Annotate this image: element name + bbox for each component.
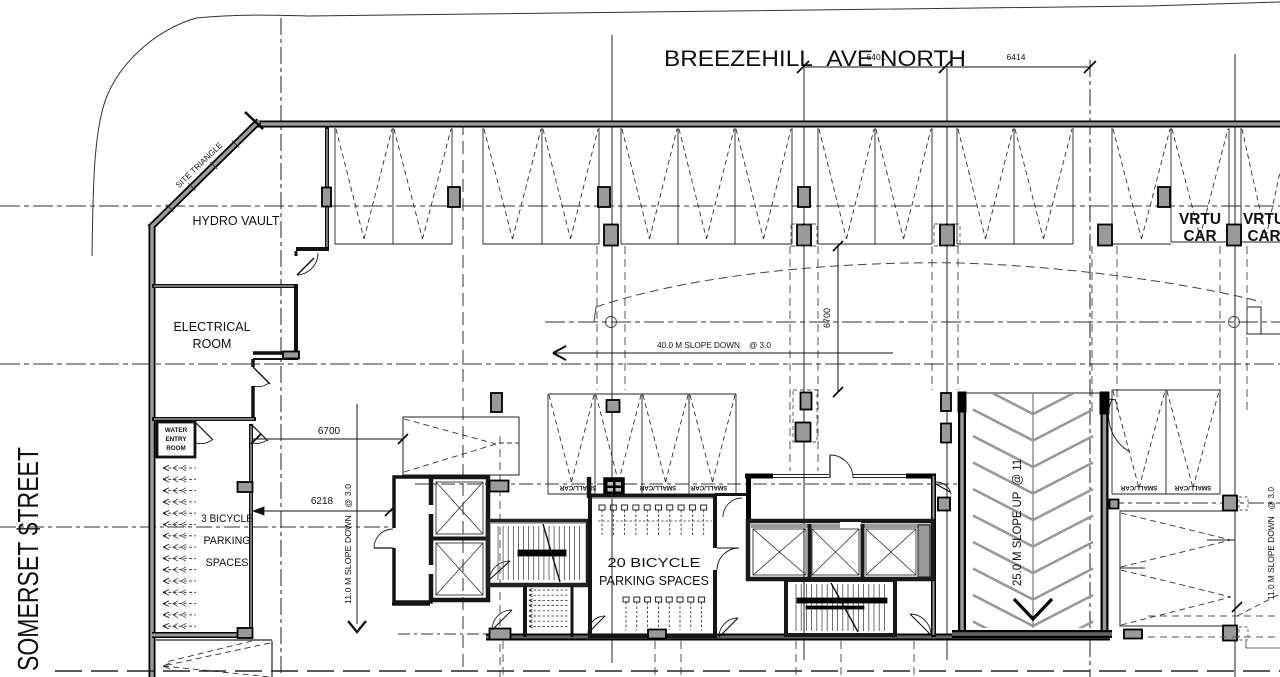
- svg-text:CAR: CAR: [1184, 228, 1217, 245]
- svg-text:40.0 M SLOPE DOWN @ 3.0: 40.0 M SLOPE DOWN @ 3.0: [657, 341, 771, 350]
- svg-text:ROOM: ROOM: [166, 445, 186, 452]
- svg-text:SMALL/CAR: SMALL/CAR: [1174, 484, 1211, 491]
- svg-text:PARKING: PARKING: [204, 535, 251, 547]
- svg-text:3 BICYCLE: 3 BICYCLE: [201, 513, 253, 525]
- svg-text:SOMERSET $TREET: SOMERSET $TREET: [13, 447, 45, 671]
- svg-text:SPACES: SPACES: [206, 557, 249, 569]
- svg-text:PARKING SPACES: PARKING SPACES: [599, 573, 709, 588]
- svg-text:ROOM: ROOM: [193, 337, 232, 351]
- svg-text:11.0 M SLOPE DOWN @ 3.0: 11.0 M SLOPE DOWN @ 3.0: [343, 484, 353, 604]
- svg-text:VRTU: VRTU: [1179, 211, 1221, 228]
- svg-text:6700: 6700: [822, 308, 832, 328]
- svg-text:25.0 M SLOPE UP @ 11: 25.0 M SLOPE UP @ 11: [1010, 459, 1024, 586]
- svg-text:11.0 M SLOPE DOWN @ 3.0: 11.0 M SLOPE DOWN @ 3.0: [1266, 487, 1276, 600]
- svg-text:SMALL/CAR: SMALL/CAR: [639, 484, 676, 491]
- svg-text:ENTRY: ENTRY: [165, 436, 187, 443]
- svg-text:WATER: WATER: [165, 427, 188, 434]
- svg-text:HYDRO VAULT: HYDRO VAULT: [192, 214, 279, 228]
- svg-text:SMALL/CAR: SMALL/CAR: [1120, 484, 1157, 491]
- svg-text:6401: 6401: [867, 52, 886, 62]
- svg-text:6700: 6700: [318, 426, 341, 437]
- svg-text:6218: 6218: [311, 496, 334, 507]
- svg-text:6414: 6414: [1007, 52, 1026, 62]
- svg-text:SMALL/CAR: SMALL/CAR: [690, 484, 727, 491]
- svg-text:VRTU: VRTU: [1243, 211, 1280, 228]
- svg-text:CAR: CAR: [1248, 228, 1280, 245]
- svg-text:20 BICYCLE: 20 BICYCLE: [608, 555, 701, 570]
- svg-text:ELECTRICAL: ELECTRICAL: [173, 320, 250, 334]
